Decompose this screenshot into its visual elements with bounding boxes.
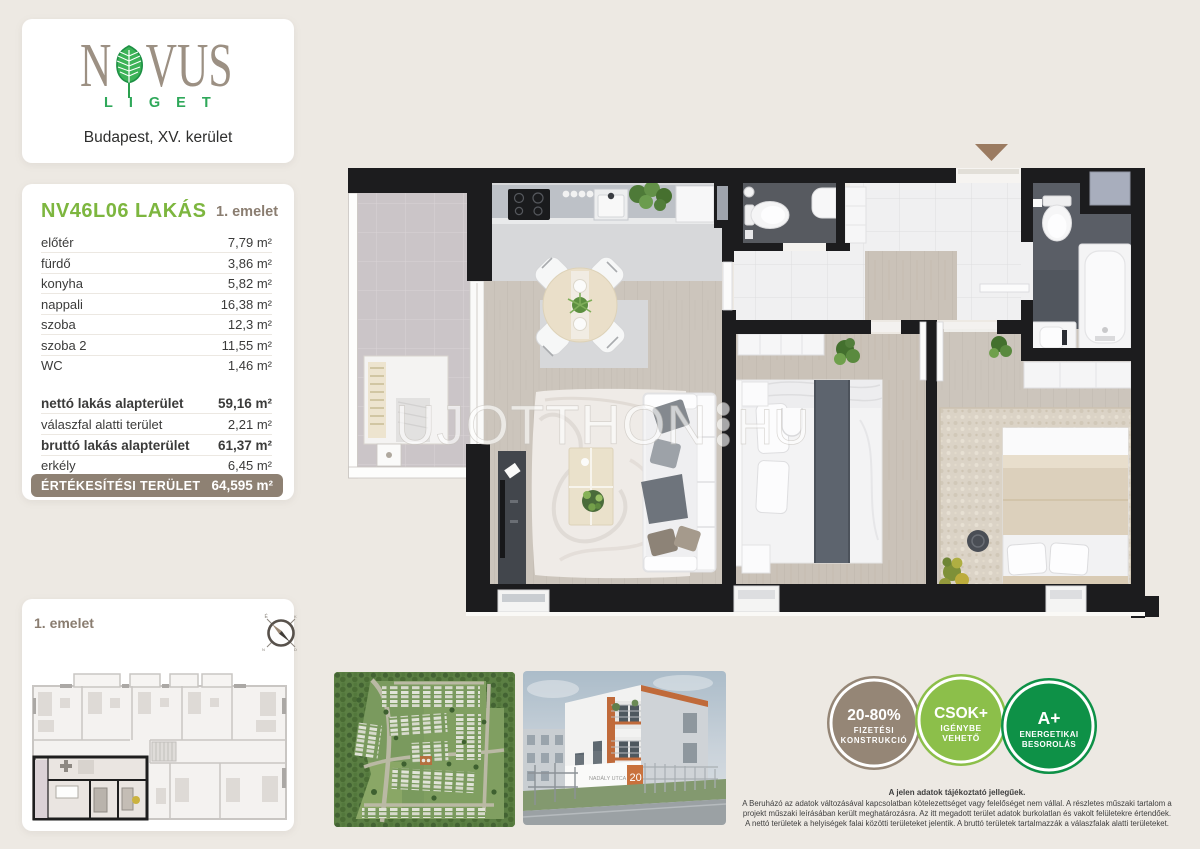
- svg-text:UJOTTHON: UJOTTHON: [395, 393, 708, 456]
- svg-text:KONSTRUKCIÓ: KONSTRUKCIÓ: [841, 736, 908, 745]
- svg-text:A+: A+: [1038, 708, 1061, 728]
- svg-text:FIZETÉSI: FIZETÉSI: [854, 726, 895, 735]
- svg-text:K: K: [294, 614, 297, 619]
- svg-text:20: 20: [630, 772, 642, 784]
- svg-text:NADÁLY UTCA: NADÁLY UTCA: [589, 775, 627, 782]
- svg-text:CSOK+: CSOK+: [934, 705, 988, 722]
- svg-text:D: D: [294, 647, 297, 652]
- svg-text:IGÉNYBE: IGÉNYBE: [940, 722, 981, 733]
- svg-text:VEHETŐ: VEHETŐ: [942, 732, 979, 743]
- svg-text:N: N: [262, 647, 265, 652]
- svg-text:BESOROLÁS: BESOROLÁS: [1022, 740, 1077, 749]
- svg-text:20-80%: 20-80%: [847, 707, 901, 724]
- svg-text:É: É: [265, 613, 269, 620]
- svg-text:HU: HU: [737, 399, 809, 455]
- svg-text:ENERGETIKAI: ENERGETIKAI: [1019, 730, 1078, 739]
